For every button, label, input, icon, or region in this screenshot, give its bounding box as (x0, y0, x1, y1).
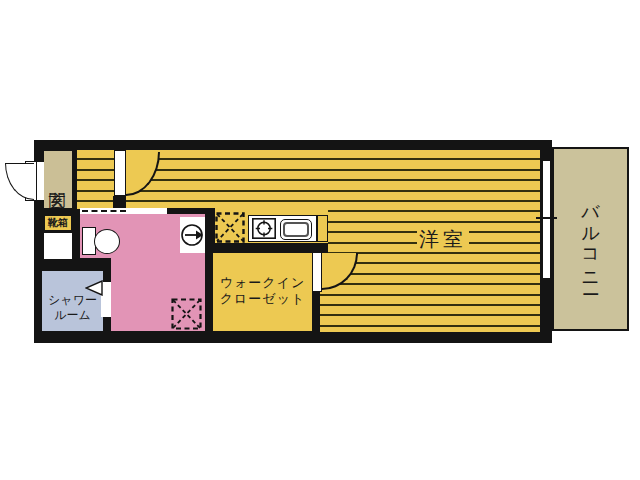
entry-step (44, 233, 72, 259)
sink-icon (280, 219, 312, 240)
closet-door-leaf (312, 252, 322, 292)
entrance-door-arc (5, 163, 34, 200)
wall-below-kitchen (205, 243, 328, 253)
walk-in-closet: ウォークイン クローゼット (213, 253, 312, 331)
sliding-door (80, 208, 167, 214)
corridor-door-leaf (114, 150, 126, 196)
toilet-icon (82, 227, 120, 255)
balcony-window-tick (536, 217, 557, 219)
balcony-label: バルコニー (579, 191, 603, 288)
balcony: バルコニー (552, 147, 629, 331)
sliding-door-track (82, 210, 126, 212)
washing-machine-icon (180, 217, 205, 253)
shower-door-icon (85, 280, 103, 296)
walk-in-closet-label: ウォークイン クローゼット (213, 275, 312, 307)
genkan: 玄関 (44, 151, 72, 208)
balcony-window (541, 161, 552, 278)
refrigerator-space-icon (215, 212, 245, 243)
shoebox-label: 靴箱 (48, 216, 68, 230)
shoebox: 靴箱 (44, 215, 72, 231)
genkan-label: 玄関 (47, 178, 70, 182)
entrance-door-gap (36, 162, 44, 200)
shower-room-label: シャワー ルーム (42, 293, 103, 323)
main-room-label: 洋室 (417, 226, 469, 253)
stove-icon (252, 218, 276, 239)
floor-plan: バルコニー 玄関 靴箱 シャワー ルーム ウォーク (0, 0, 640, 480)
laundry-space-icon (171, 298, 202, 330)
kitchen-cabinet (317, 215, 328, 242)
